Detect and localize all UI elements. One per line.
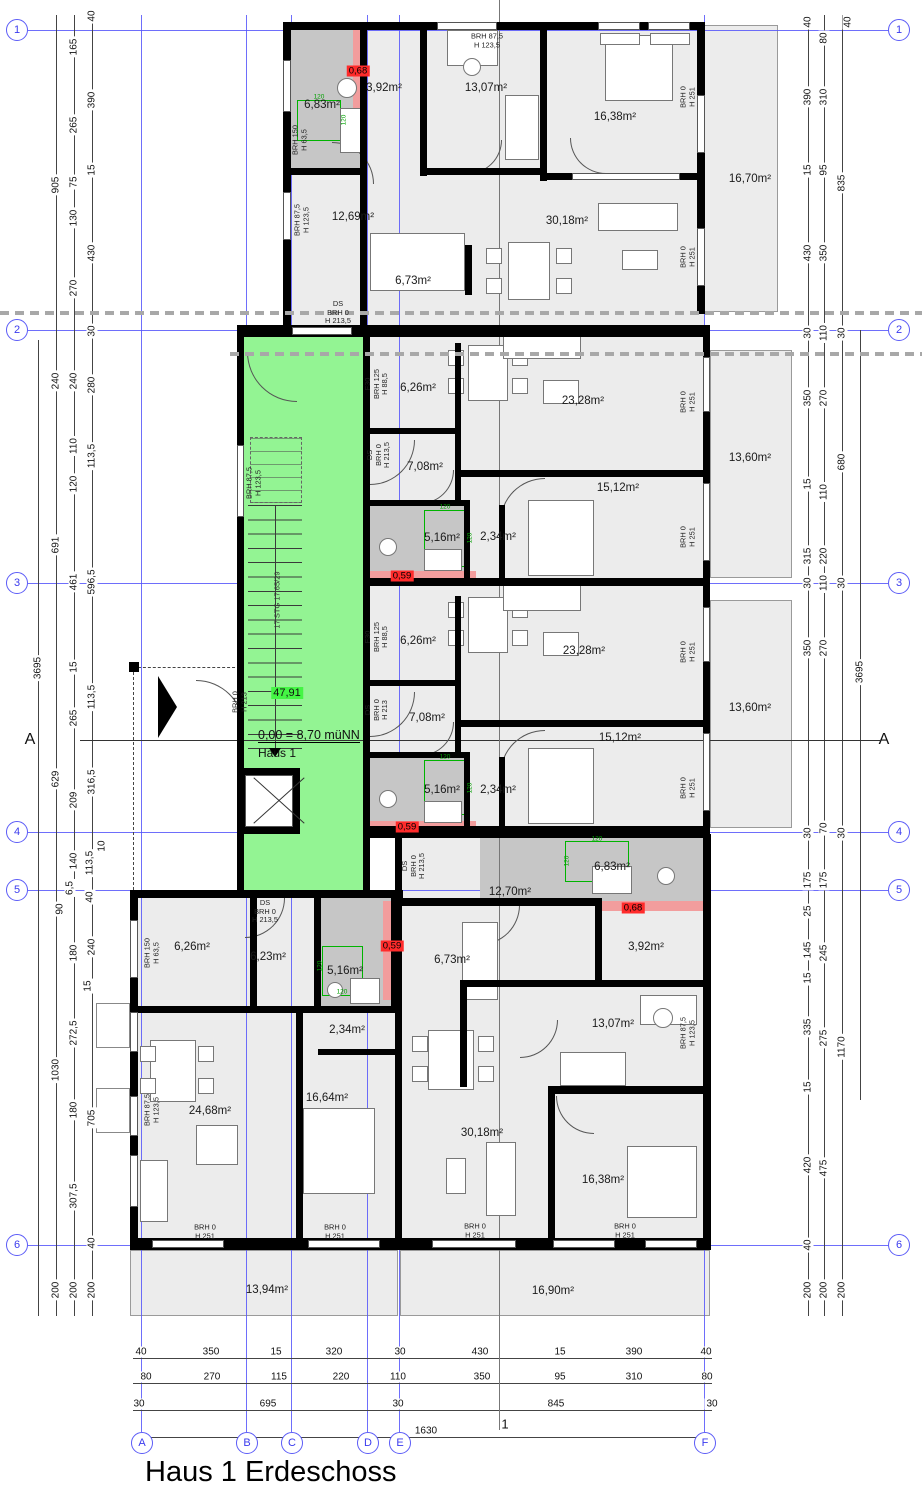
dimension-label: 315 (803, 546, 814, 567)
wall (455, 343, 461, 505)
dimension-label: 680 (837, 452, 848, 473)
dimension-label: 629 (51, 769, 62, 790)
safety-value-label: 0,59 (396, 822, 419, 833)
parapet-note: BRH 0 H 251 (464, 1222, 486, 1239)
wall (391, 898, 398, 1008)
dimension-label: 75 (69, 174, 80, 189)
section-marker-a-right: A (879, 731, 890, 749)
fire-band (600, 901, 710, 911)
dimension-label: 220 (331, 1372, 352, 1383)
wall (360, 175, 367, 325)
wall (360, 28, 367, 176)
window (152, 1240, 224, 1248)
dimension-label: 240 (87, 937, 98, 958)
dimension-label: 307,5 (69, 1181, 80, 1210)
fixture-circle (337, 78, 357, 98)
dimension-label: 110 (819, 573, 830, 593)
room-area-label: 13,60m² (729, 702, 771, 714)
dimension-label: 120 (69, 474, 80, 495)
window (130, 1155, 138, 1207)
parapet-note: F30 BRH 125 H 88,5 (364, 622, 390, 652)
dimension-label: 270 (69, 278, 80, 299)
grid-bubble-4: 4 (888, 821, 910, 843)
room-area-label: 13,07m² (465, 82, 507, 94)
wall (460, 720, 704, 727)
shower-dim-label: 120 (341, 115, 348, 126)
wall (395, 834, 402, 1250)
furniture (650, 33, 690, 45)
furniture (627, 1146, 697, 1218)
fixture-circle (653, 1008, 673, 1028)
window-sill (96, 1088, 130, 1133)
furniture (412, 1036, 428, 1052)
wall (460, 980, 703, 987)
furniture (600, 33, 640, 45)
shower-dim-label: 120 (467, 533, 474, 544)
dimension-label: 110 (819, 482, 830, 502)
dimension-label: 350 (201, 1347, 222, 1358)
wall (548, 1086, 704, 1094)
safety-value-label: 0,68 (347, 66, 370, 77)
window (703, 357, 710, 412)
dimension-label: 175 (819, 870, 830, 891)
room-area-label: 6,26m² (400, 382, 436, 394)
room-area-label: 6,26m² (174, 941, 210, 953)
window (130, 920, 138, 978)
window (432, 1240, 516, 1248)
dimension-label: 15 (268, 1347, 283, 1358)
floor-plan-canvas: Haus 1 Erdeschoss 47,91 0,00 = 8,70 müNN… (0, 0, 922, 1494)
window (703, 607, 710, 662)
dimension-label: 110 (819, 323, 830, 343)
dimension-label: 25 (803, 903, 814, 918)
parapet-note: DS BRH 0 H 213,5 (252, 899, 278, 925)
level-datum-note: 0,00 = 8,70 müNN (258, 728, 360, 743)
grid-bubble-6: 6 (888, 1234, 910, 1256)
dimension-label: 200 (837, 1280, 848, 1301)
dimension-label: 15 (87, 162, 98, 177)
furniture (598, 203, 678, 231)
room-area-label: 6,73m² (395, 275, 431, 287)
room-area-label: 12,70m² (489, 886, 531, 898)
entrance-dashed-line (133, 667, 240, 668)
datum-square (129, 662, 139, 672)
furniture (508, 242, 550, 300)
room-area-label: 2,34m² (329, 1024, 365, 1036)
shower-dim-label: 120 (440, 504, 451, 511)
dimension-label: 113,5 (87, 683, 98, 711)
dimension-label: 3695 (855, 659, 866, 685)
dimension-line (133, 1358, 712, 1359)
furniture (528, 748, 594, 824)
wall (363, 578, 710, 586)
wall (540, 28, 547, 181)
room-area-label: 16,90m² (532, 1285, 574, 1297)
window-sill (96, 1003, 130, 1048)
dimension-label: 705 (87, 1108, 98, 1129)
fixture-circle (379, 538, 397, 556)
dimension-label: 30 (837, 325, 848, 340)
window (237, 445, 244, 517)
dimension-label: 15 (803, 970, 814, 985)
grid-bubble-6: 6 (6, 1234, 28, 1256)
dimension-label: 270 (202, 1372, 223, 1383)
grid-bubble-3: 3 (888, 572, 910, 594)
grid-bubble-C: C (281, 1432, 303, 1454)
house-label: Haus 1 (258, 746, 296, 760)
dimension-label: 272,5 (69, 1018, 80, 1047)
furniture (512, 630, 528, 646)
shower-dim-label: 120 (337, 989, 348, 996)
dimension-line (808, 15, 809, 1316)
entrance-arrow (158, 676, 177, 738)
room-area-label: 5,16m² (424, 532, 460, 544)
parapet-note: F30 BRH 125 H 88,5 (364, 369, 390, 399)
dimension-label: 10 (97, 838, 108, 853)
window (703, 483, 710, 561)
dimension-label: 80 (699, 1372, 714, 1383)
dimension-label: 30 (803, 575, 814, 590)
room-area-label: 13,07m² (592, 1018, 634, 1030)
dimension-label: 70 (819, 820, 830, 835)
fixture-circle (657, 867, 675, 885)
dimension-line (133, 1437, 712, 1438)
dimension-label: 15 (803, 476, 814, 491)
parapet-note: BRH 0 H 251 (679, 391, 696, 413)
dimension-label: 40 (803, 14, 814, 29)
room-area-label: 5,16m² (327, 965, 363, 977)
furniture (622, 250, 658, 270)
wall (363, 752, 470, 758)
dimension-label: 40 (843, 14, 854, 29)
dimension-label: 6,5 (65, 879, 76, 897)
parapet-note: BRH 0 H 251 (679, 246, 696, 268)
room-area-label: 6,73m² (434, 954, 470, 966)
grid-bubble-D: D (357, 1432, 379, 1454)
room-area-label: 16,38m² (594, 111, 636, 123)
dimension-label: 390 (87, 90, 98, 111)
dimension-label: 1170 (837, 1034, 848, 1060)
dimension-label: 1030 (51, 1057, 62, 1083)
terrace-area (400, 1250, 710, 1316)
dimension-label: 270 (819, 388, 830, 409)
furniture (505, 95, 539, 160)
window (572, 173, 680, 180)
dimension-line (133, 1410, 712, 1411)
dimension-label: 95 (552, 1372, 567, 1383)
grid-bubble-A: A (131, 1432, 153, 1454)
wall (290, 168, 367, 175)
dimension-label: 350 (472, 1372, 493, 1383)
dimension-label: 316,5 (87, 767, 98, 796)
grid-bubble-3: 3 (6, 572, 28, 594)
window (292, 327, 352, 335)
dimension-label: 145 (803, 940, 814, 961)
furniture (468, 597, 508, 653)
section-marker-a-left: A (25, 731, 36, 749)
dimension-label: 275 (819, 1028, 830, 1049)
dimension-label: 175 (803, 870, 814, 891)
room-area-label: 6,83m² (304, 99, 340, 111)
dimension-label: 140 (69, 851, 80, 872)
cut-dash-line (0, 311, 922, 315)
dimension-label: 40 (85, 889, 96, 904)
wall (363, 428, 455, 434)
parapet-note: BRH 150 H 63,5 (143, 938, 160, 968)
window (283, 60, 291, 112)
furniture (303, 1108, 375, 1194)
wall (703, 834, 711, 1250)
dimension-label: 310 (819, 87, 830, 108)
wall (363, 680, 455, 686)
furniture (140, 1160, 168, 1222)
dimension-label: 40 (87, 8, 98, 23)
dimension-label: 390 (803, 87, 814, 108)
dimension-label: 845 (546, 1399, 567, 1410)
dimension-label: 350 (803, 388, 814, 409)
dimension-label: 350 (803, 638, 814, 659)
dimension-label: 691 (51, 535, 62, 556)
terrace-area (710, 350, 792, 578)
parapet-note: BRH 0 H 251 (194, 1223, 216, 1240)
furniture (556, 248, 572, 264)
dimension-label: 200 (69, 1280, 80, 1301)
dimension-label: 265 (69, 708, 80, 729)
terrace-area (710, 600, 792, 828)
fixture-circle (463, 58, 481, 76)
dimension-label: 335 (803, 1017, 814, 1038)
room-area-label: 6,83m² (594, 861, 630, 873)
dimension-label: 310 (624, 1372, 645, 1383)
dimension-label: 30 (803, 825, 814, 840)
parapet-note: BRH 87,5 H 123,5 (293, 204, 310, 236)
dimension-label: 30 (392, 1347, 407, 1358)
room-area-label: 2,34m² (480, 784, 516, 796)
parapet-note: BRH 150 H 63,5 (291, 125, 308, 155)
shower-dim-label: 120 (440, 754, 451, 761)
dimension-label: 90 (55, 901, 66, 916)
dimension-line (824, 15, 825, 1316)
dimension-label: 461 (69, 572, 80, 593)
dimension-label: 30 (837, 825, 848, 840)
window (283, 192, 291, 240)
dimension-label: 130 (69, 208, 80, 229)
parapet-note: BRH 0 H 251 (614, 1222, 636, 1239)
wall (363, 500, 470, 506)
dimension-label: 430 (803, 243, 814, 264)
safety-value-label: 0,59 (381, 941, 404, 952)
shower-dim-label: 120 (564, 856, 571, 867)
grid-bubble-F: F (694, 1432, 716, 1454)
wall (296, 1013, 303, 1243)
dimension-line (133, 1383, 712, 1384)
room-area-label: 2,34m² (480, 531, 516, 543)
shower-dim-label: 120 (317, 961, 324, 972)
grid-bubble-E: E (389, 1432, 411, 1454)
drawing-title: Haus 1 Erdeschoss (145, 1456, 396, 1489)
room-area-label: 12,69m² (332, 211, 374, 223)
wall (314, 898, 321, 1008)
dimension-label: 40 (803, 1237, 814, 1252)
dimension-label: 475 (819, 1158, 830, 1179)
terrace-area (704, 25, 778, 312)
room-area-label: 13,60m² (729, 452, 771, 464)
dimension-label: 200 (51, 1280, 62, 1301)
dimension-label: 270 (819, 638, 830, 659)
parapet-note: BRH 0 H 251 (679, 526, 696, 548)
window (697, 95, 705, 153)
grid-bubble-2: 2 (888, 319, 910, 341)
dimension-label: 430 (470, 1347, 491, 1358)
dimension-label: 95 (819, 162, 830, 177)
furniture (198, 1046, 214, 1062)
dimension-label: 110 (69, 436, 80, 456)
dimension-label: 3695 (33, 655, 44, 681)
furniture (446, 1158, 466, 1194)
room-area-label: 7,08m² (409, 712, 445, 724)
dimension-label: 40 (133, 1347, 148, 1358)
grid-bubble-4: 4 (6, 821, 28, 843)
dimension-label: 209 (69, 790, 80, 811)
wall (130, 890, 403, 898)
wall (427, 168, 547, 175)
dimension-line (38, 340, 39, 1316)
parapet-note: BRH 87,5 H 123,5 (679, 1017, 696, 1049)
window (130, 1096, 138, 1136)
dimension-label: 15 (83, 978, 94, 993)
parapet-note: DS BRH 0 H 213,5 (325, 300, 351, 326)
entrance-dashed-line (133, 667, 134, 890)
dimension-label: 15 (803, 162, 814, 177)
room-area-label: 5,16m² (424, 784, 460, 796)
grid-bubble-5: 5 (888, 879, 910, 901)
dimension-line (56, 15, 57, 1316)
room-area-label: 23,28m² (562, 395, 604, 407)
furniture (560, 1052, 626, 1086)
dimension-label: 200 (803, 1280, 814, 1301)
furniture (424, 549, 462, 571)
grid-bubble-5: 5 (6, 879, 28, 901)
dimension-label: 200 (87, 1280, 98, 1301)
furniture (512, 378, 528, 394)
dimension-label: 245 (819, 943, 830, 964)
dimension-label: 280 (87, 375, 98, 396)
shower-dim-label: 120 (467, 783, 474, 794)
stairwell-area-label: 47,91 (271, 687, 303, 699)
dimension-label: 30 (704, 1399, 719, 1410)
dimension-label: 30 (87, 323, 98, 338)
window (703, 733, 710, 811)
room-area-label: 16,70m² (729, 173, 771, 185)
dimension-label: 15 (803, 1079, 814, 1094)
furniture (486, 1142, 516, 1216)
window (697, 228, 705, 286)
grid-bubble-1: 1 (6, 19, 28, 41)
parapet-note: BRH 0 H 251 (324, 1223, 346, 1240)
furniture (424, 801, 462, 823)
dimension-label: 180 (69, 1100, 80, 1121)
wall (455, 596, 461, 756)
dimension-label: 265 (69, 115, 80, 136)
parapet-note: BRH 0 H 251 (679, 641, 696, 663)
parapet-note: DS BRH 0 H 213 (364, 699, 390, 721)
safety-value-label: 0,59 (391, 571, 414, 582)
dimension-label: 180 (69, 943, 80, 964)
window (648, 22, 690, 30)
shower-dim-label: 120 (592, 836, 603, 843)
dimension-label: 113,5 (87, 442, 98, 470)
dimension-label: 835 (837, 173, 848, 194)
wall (548, 1094, 555, 1244)
cut-dash-line (230, 352, 922, 356)
dimension-label: 596,5 (87, 567, 98, 596)
dimension-label: 200 (819, 1280, 830, 1301)
furniture (478, 1036, 494, 1052)
fixture-circle (379, 790, 397, 808)
dimension-label: 30 (837, 575, 848, 590)
dimension-label: 390 (624, 1347, 645, 1358)
window (308, 1240, 380, 1248)
dimension-label: 30 (131, 1399, 146, 1410)
wall (595, 906, 602, 984)
dimension-label: 30 (803, 325, 814, 340)
room-area-label: 7,08m² (407, 461, 443, 473)
room-area-label: 13,94m² (246, 1284, 288, 1296)
wall (402, 898, 602, 906)
parapet-note: BRH 87,5 H 123,5 (245, 467, 262, 499)
dimension-label: 40 (87, 1235, 98, 1250)
wall (465, 245, 472, 295)
room-area-label: 24,68m² (189, 1105, 231, 1117)
grid-bubble-2: 2 (6, 319, 28, 341)
room-area-label: 30,18m² (461, 1127, 503, 1139)
window (553, 1240, 615, 1248)
grid-bubble-1: 1 (888, 19, 910, 41)
dimension-label: 113,5 (85, 849, 96, 877)
furniture (140, 1046, 156, 1062)
furniture (486, 278, 502, 294)
furniture (150, 1040, 196, 1102)
wall (130, 1006, 398, 1013)
dimension-label: 420 (803, 1155, 814, 1176)
furniture (196, 1125, 238, 1165)
dimension-label: 695 (258, 1399, 279, 1410)
wall (460, 987, 467, 1087)
dimension-label: 320 (324, 1347, 345, 1358)
elevator-cab (245, 775, 293, 827)
furniture (486, 248, 502, 264)
furniture (198, 1078, 214, 1094)
room-area-label: 6,23m² (250, 951, 286, 963)
furniture (350, 978, 380, 1004)
stair-run-label: 17 STG 17,65/29 (273, 571, 282, 628)
parapet-note: DS BRH 0 H 213,5 (366, 442, 392, 468)
parapet-note: BRH 0 H 251 (679, 86, 696, 108)
dimension-label: 110 (388, 1372, 408, 1383)
parapet-note: BRH 0 H 213 (231, 691, 248, 713)
room-area-label: 15,12m² (599, 732, 641, 744)
wall (363, 337, 370, 890)
parapet-note: BRH 0 H 251 (679, 777, 696, 799)
furniture (556, 278, 572, 294)
dimension-label: 220 (819, 546, 830, 567)
dimension-label: 115 (269, 1372, 289, 1383)
room-area-label: 16,64m² (306, 1092, 348, 1104)
room-area-label: 6,26m² (400, 635, 436, 647)
section-marker-1: 1 (501, 1417, 508, 1432)
parapet-note: BRH 87,5 H 123,5 (471, 32, 503, 49)
dimension-label: 40 (698, 1347, 713, 1358)
